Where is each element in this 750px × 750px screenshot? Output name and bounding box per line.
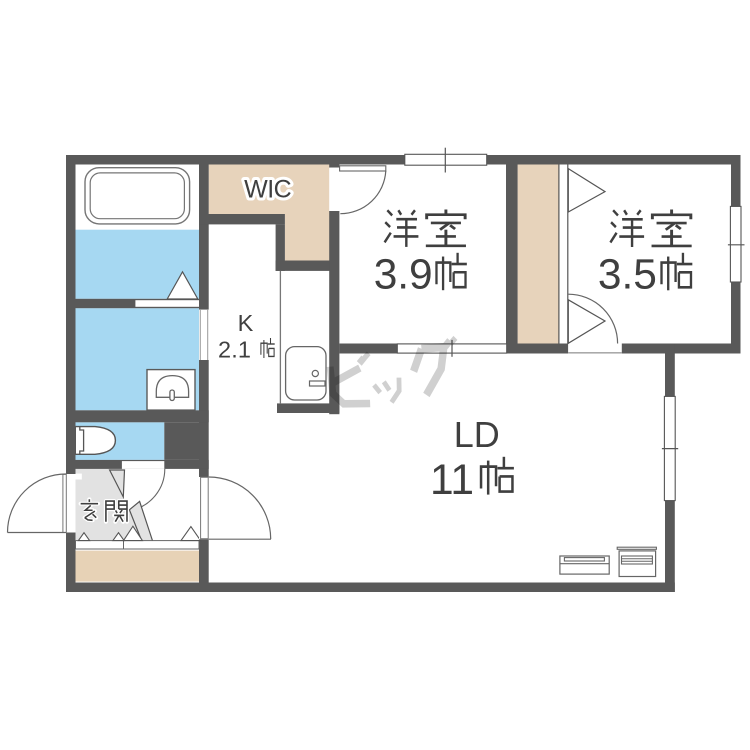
svg-text:3.9: 3.9: [374, 252, 433, 299]
svg-text:3.5: 3.5: [598, 252, 657, 299]
svg-text:K: K: [238, 310, 254, 336]
svg-text:11: 11: [430, 457, 474, 504]
svg-text:WIC: WIC: [244, 176, 292, 204]
svg-text:2.1: 2.1: [218, 336, 251, 362]
svg-text:LD: LD: [454, 414, 500, 455]
